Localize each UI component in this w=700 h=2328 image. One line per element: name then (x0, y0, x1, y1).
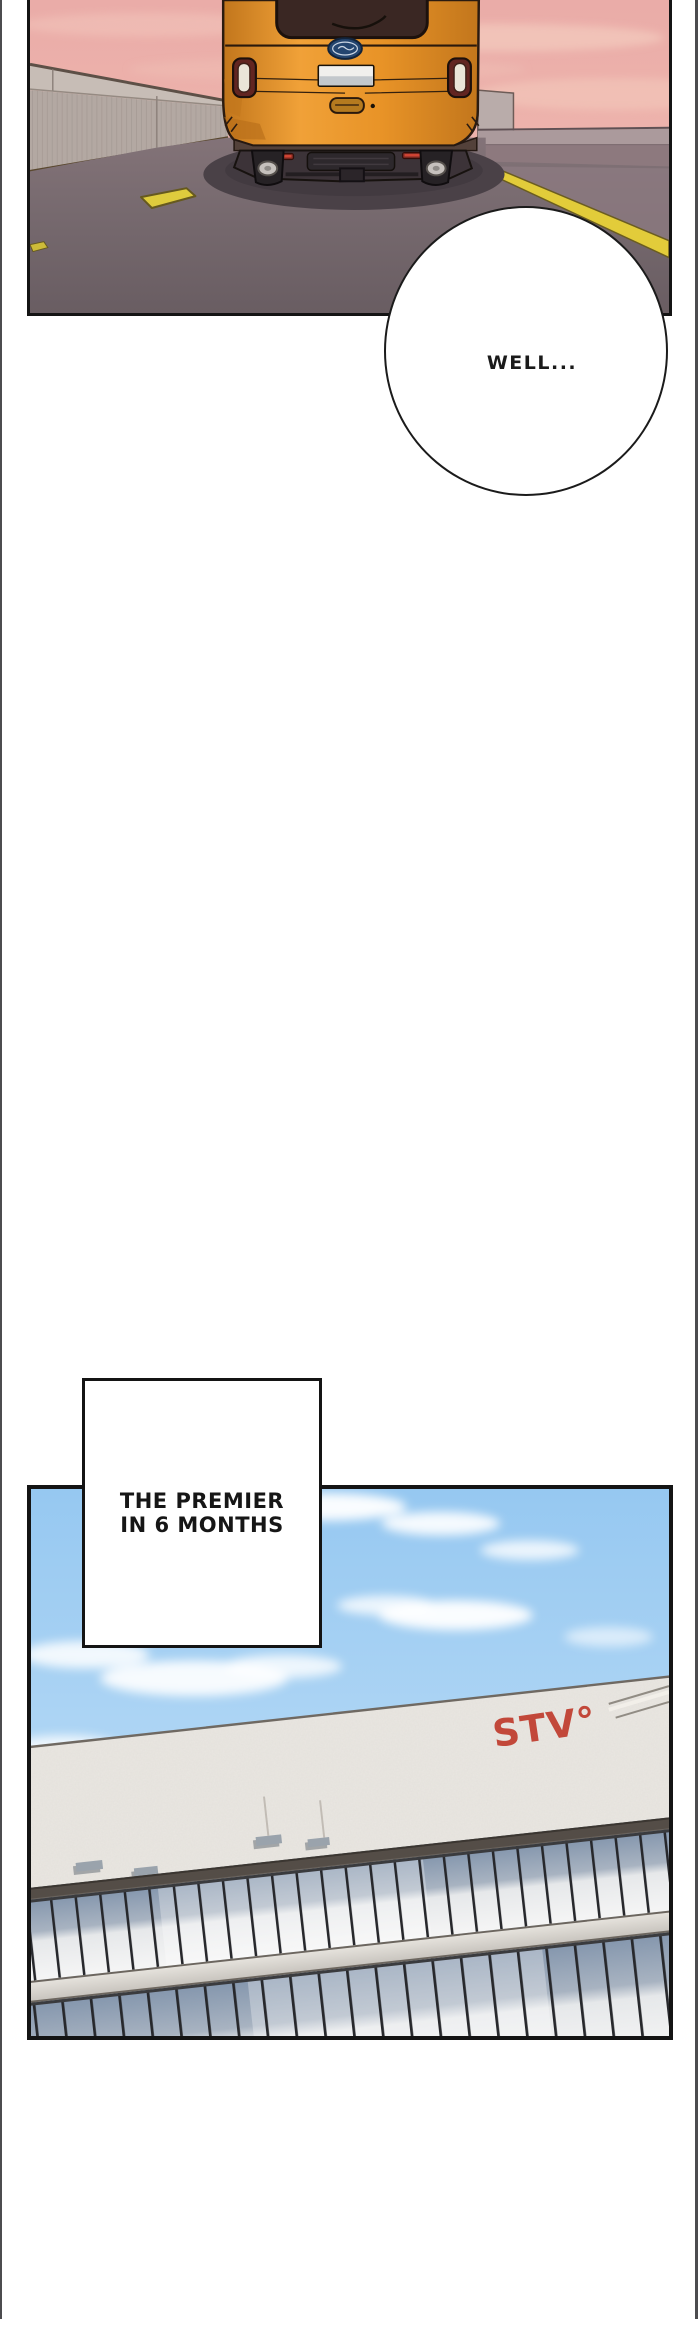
page-edge-line-left (0, 0, 2, 2319)
tail-light-left (233, 58, 256, 97)
caption-box: THE PREMIER IN 6 MONTHS (82, 1378, 322, 1648)
brand-logo-oval (328, 38, 362, 59)
orange-suv (223, 0, 479, 185)
tail-light-right (448, 58, 471, 97)
caption-line-1: THE PREMIER (120, 1489, 284, 1513)
license-plate (318, 65, 373, 86)
speech-bubble-text: WELL... (487, 352, 577, 374)
speech-bubble: WELL... (384, 206, 668, 496)
caption-line-2: IN 6 MONTHS (120, 1513, 283, 1537)
page-edge-line-right (695, 0, 698, 2319)
rear-window (277, 0, 428, 38)
comic-page: WELL... (0, 0, 700, 2328)
tow-hitch (340, 168, 364, 181)
